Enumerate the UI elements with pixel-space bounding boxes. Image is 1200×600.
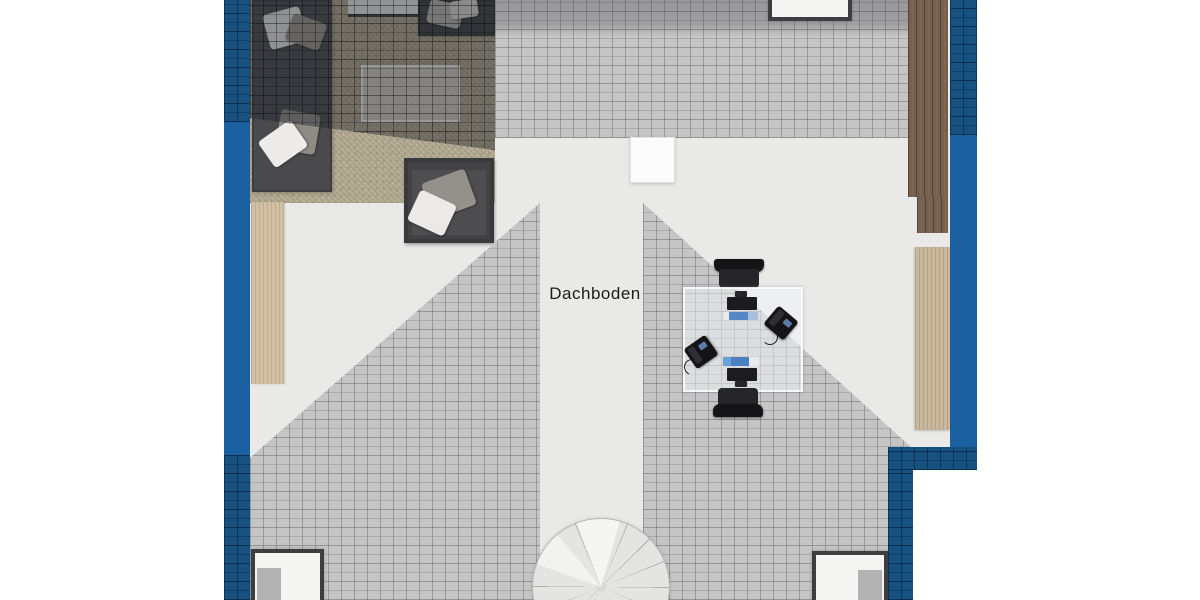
office-desk-group	[680, 255, 805, 430]
wardrobe-dark-lower	[917, 197, 948, 233]
skylight-shade	[858, 570, 882, 600]
keyboard-top	[724, 312, 758, 320]
wall-right-lower	[888, 470, 913, 600]
wall-right	[950, 0, 977, 470]
wall-step	[888, 447, 977, 470]
wall-left	[224, 0, 250, 600]
wardrobe-tan	[915, 247, 950, 430]
office-chair-top-seat	[719, 269, 759, 288]
skylight-window-bottom-right	[812, 551, 888, 600]
skylight-shade	[257, 568, 281, 600]
office-chair-bottom	[713, 404, 763, 417]
wall-right-roof-texture	[950, 0, 977, 135]
wall-left-roof-texture	[224, 455, 250, 600]
keyboard-bottom	[723, 357, 759, 366]
skylight-window-top	[768, 0, 852, 21]
skylight-window-bottom-left	[251, 549, 324, 600]
monitor-top	[727, 297, 757, 310]
monitor-stand	[735, 381, 747, 387]
chimney	[630, 137, 675, 183]
floor-plan-canvas: Dachboden	[0, 0, 1200, 600]
room-label: Dachboden	[535, 284, 655, 304]
monitor-bottom	[727, 368, 757, 381]
wall-left-roof-texture	[224, 0, 250, 122]
wardrobe-dark	[908, 0, 948, 197]
sideboard-left	[251, 202, 284, 384]
